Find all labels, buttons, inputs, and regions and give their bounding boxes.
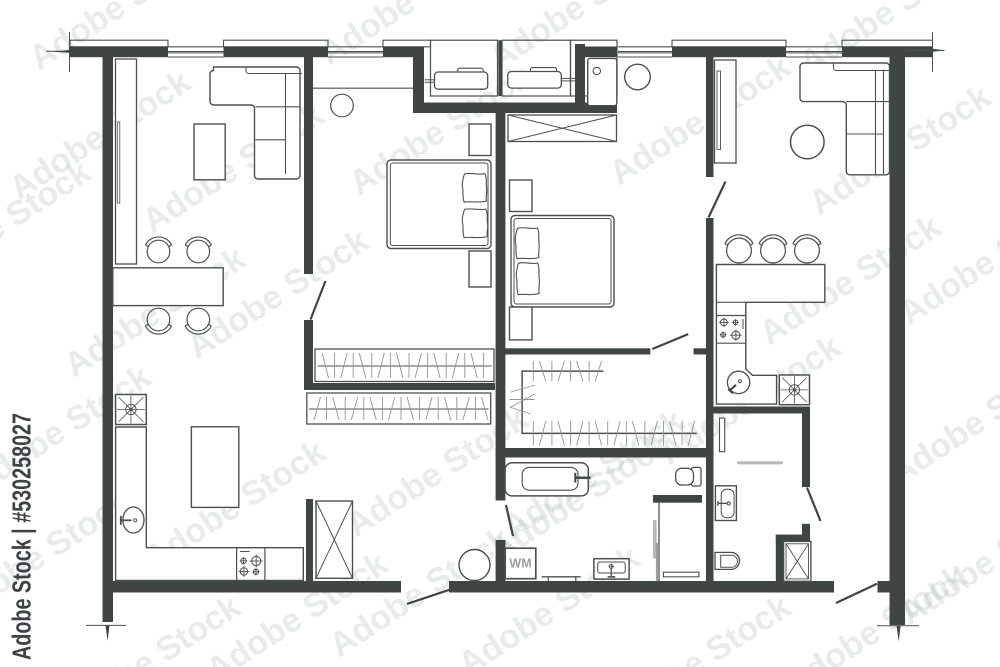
- svg-text:Adobe Stock | #530258027: Adobe Stock | #530258027: [7, 413, 36, 660]
- svg-text:WM: WM: [509, 557, 531, 571]
